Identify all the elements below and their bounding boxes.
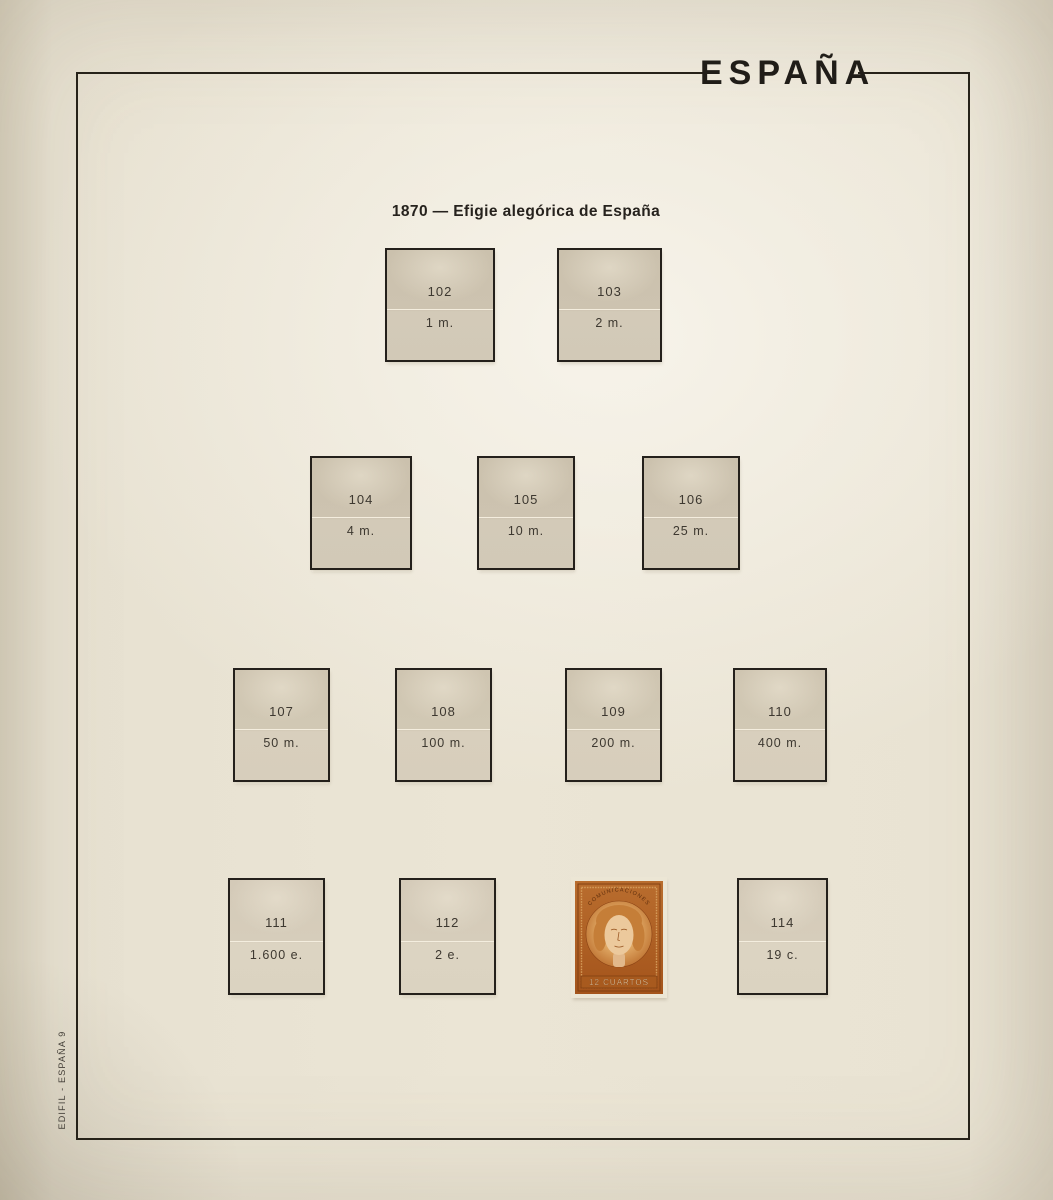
denomination-label: 1 m. <box>387 316 493 330</box>
catalog-number: 102 <box>387 284 493 302</box>
stamp-artwork: COMUNICACIONES 12 CUARTOS <box>575 881 663 994</box>
stamp-slot-102: 102 1 m. <box>385 248 495 362</box>
mount-seam <box>235 729 328 730</box>
denomination-label: 2 e. <box>401 948 494 962</box>
stamp-slot-112: 112 2 e. <box>399 878 496 995</box>
mount-seam <box>735 729 825 730</box>
portrait-neck <box>613 953 625 967</box>
publisher-mark: EDIFIL - ESPAÑA 9 <box>57 1025 69 1135</box>
mount-sheen <box>739 880 826 993</box>
country-title: ESPAÑA <box>700 54 870 93</box>
stamp-slot-110: 110 400 m. <box>733 668 827 782</box>
stamp-slot-105: 105 10 m. <box>477 456 575 570</box>
catalog-number: 105 <box>479 492 573 510</box>
denomination-label: 1.600 e. <box>230 948 323 962</box>
catalog-number: 108 <box>397 704 490 722</box>
catalog-number: 106 <box>644 492 738 510</box>
portrait-face <box>605 915 634 955</box>
mount-seam <box>479 517 573 518</box>
catalog-number: 111 <box>230 915 323 933</box>
mounted-stamp: COMUNICACIONES 12 CUARTOS <box>571 877 667 998</box>
catalog-number: 110 <box>735 704 825 722</box>
denomination-label: 400 m. <box>735 736 825 750</box>
denomination-label: 50 m. <box>235 736 328 750</box>
mount-sheen <box>644 458 738 568</box>
mount-sheen <box>567 670 660 780</box>
mount-sheen <box>230 880 323 993</box>
denomination-label: 25 m. <box>644 524 738 538</box>
mount-sheen <box>312 458 410 568</box>
mount-seam <box>567 729 660 730</box>
denomination-label: 2 m. <box>559 316 660 330</box>
page-border-frame <box>76 74 970 1140</box>
denomination-label: 4 m. <box>312 524 410 538</box>
stamp-slot-106: 106 25 m. <box>642 456 740 570</box>
mount-sheen <box>397 670 490 780</box>
page-border-top-left-segment <box>76 72 709 74</box>
mount-sheen <box>735 670 825 780</box>
denomination-label: 200 m. <box>567 736 660 750</box>
catalog-number: 112 <box>401 915 494 933</box>
mount-seam <box>739 941 826 942</box>
album-page-photo: ESPAÑA 1870 — Efigie alegórica de España… <box>0 0 1053 1200</box>
series-heading: 1870 — Efigie alegórica de España <box>326 203 726 221</box>
catalog-number: 107 <box>235 704 328 722</box>
denomination-label: 19 c. <box>739 948 826 962</box>
mount-seam <box>397 729 490 730</box>
mount-seam <box>312 517 410 518</box>
mount-sheen <box>401 880 494 993</box>
stamp-slot-108: 108 100 m. <box>395 668 492 782</box>
stamp-slot-114: 114 19 c. <box>737 878 828 995</box>
stamp-slot-107: 107 50 m. <box>233 668 330 782</box>
mount-sheen <box>479 458 573 568</box>
stamp-slot-103: 103 2 m. <box>557 248 662 362</box>
mount-sheen <box>235 670 328 780</box>
catalog-number: 109 <box>567 704 660 722</box>
mount-seam <box>559 309 660 310</box>
catalog-number: 114 <box>739 915 826 933</box>
catalog-number: 104 <box>312 492 410 510</box>
mount-seam <box>230 941 323 942</box>
mount-sheen <box>387 250 493 360</box>
mount-seam <box>387 309 493 310</box>
catalog-number: 103 <box>559 284 660 302</box>
denomination-label: 100 m. <box>397 736 490 750</box>
mount-sheen <box>559 250 660 360</box>
stamp-denomination: 12 CUARTOS <box>589 978 649 987</box>
mount-seam <box>644 517 738 518</box>
stamp-slot-104: 104 4 m. <box>310 456 412 570</box>
stamp-slot-111: 111 1.600 e. <box>228 878 325 995</box>
stamp-slot-109: 109 200 m. <box>565 668 662 782</box>
mount-seam <box>401 941 494 942</box>
denomination-label: 10 m. <box>479 524 573 538</box>
